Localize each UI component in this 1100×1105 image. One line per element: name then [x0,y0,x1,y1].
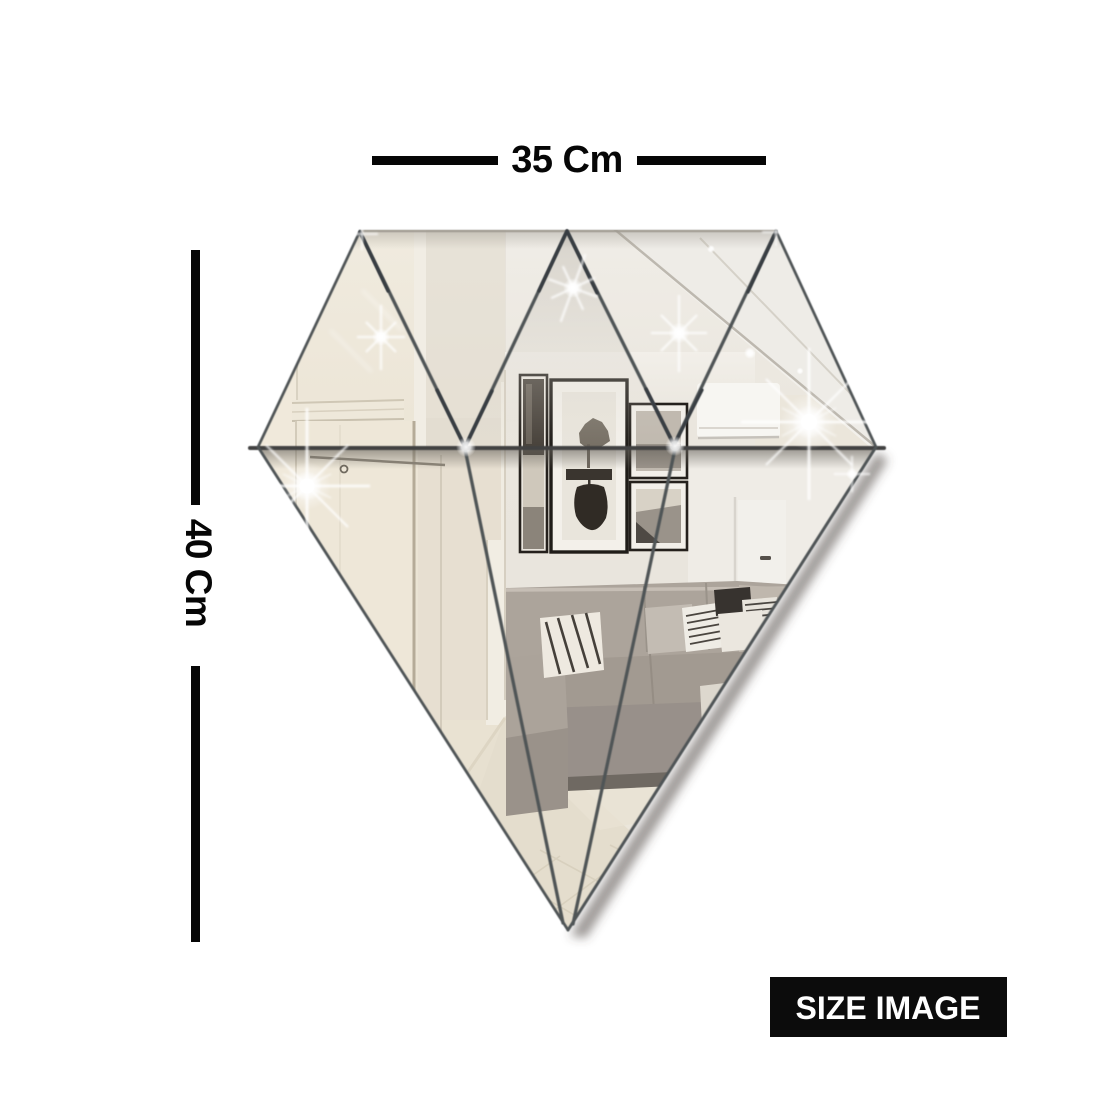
svg-text:35 Cm: 35 Cm [511,139,623,181]
svg-text:SIZE IMAGE: SIZE IMAGE [796,990,981,1026]
svg-text:40 Cm: 40 Cm [178,519,219,628]
